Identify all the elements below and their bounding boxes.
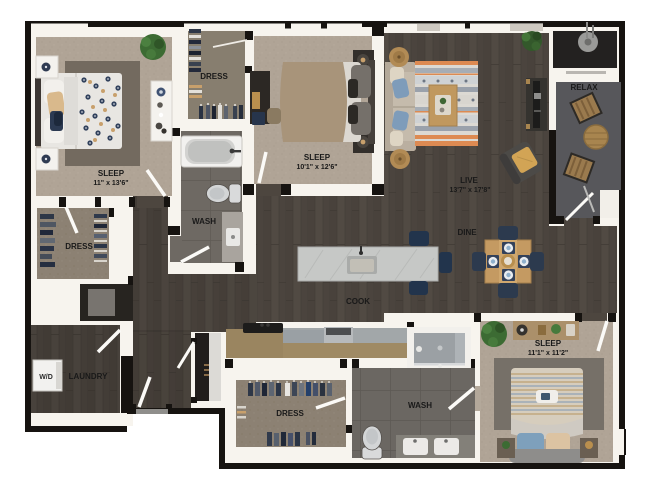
svg-text:LAUNDRY: LAUNDRY (69, 372, 108, 381)
svg-text:SLEEP: SLEEP (535, 339, 562, 348)
svg-text:WASH: WASH (192, 217, 216, 226)
svg-text:COOK: COOK (346, 297, 370, 306)
svg-text:LIVE: LIVE (460, 176, 478, 185)
svg-text:DINE: DINE (457, 228, 477, 237)
svg-text:11" x 13'6": 11" x 13'6" (93, 180, 128, 187)
svg-text:W/D: W/D (39, 374, 53, 381)
svg-text:SLEEP: SLEEP (304, 153, 331, 162)
svg-text:10'1" x 12'6": 10'1" x 12'6" (296, 164, 337, 171)
svg-text:DRESS: DRESS (65, 242, 93, 251)
svg-text:RELAX: RELAX (570, 83, 598, 92)
svg-text:13'7" x 17'8": 13'7" x 17'8" (449, 187, 490, 194)
svg-text:WASH: WASH (408, 401, 432, 410)
svg-text:DRESS: DRESS (276, 409, 304, 418)
svg-text:SLEEP: SLEEP (98, 169, 125, 178)
svg-text:DRESS: DRESS (200, 72, 228, 81)
svg-text:11'1" x 11'2": 11'1" x 11'2" (528, 350, 568, 357)
